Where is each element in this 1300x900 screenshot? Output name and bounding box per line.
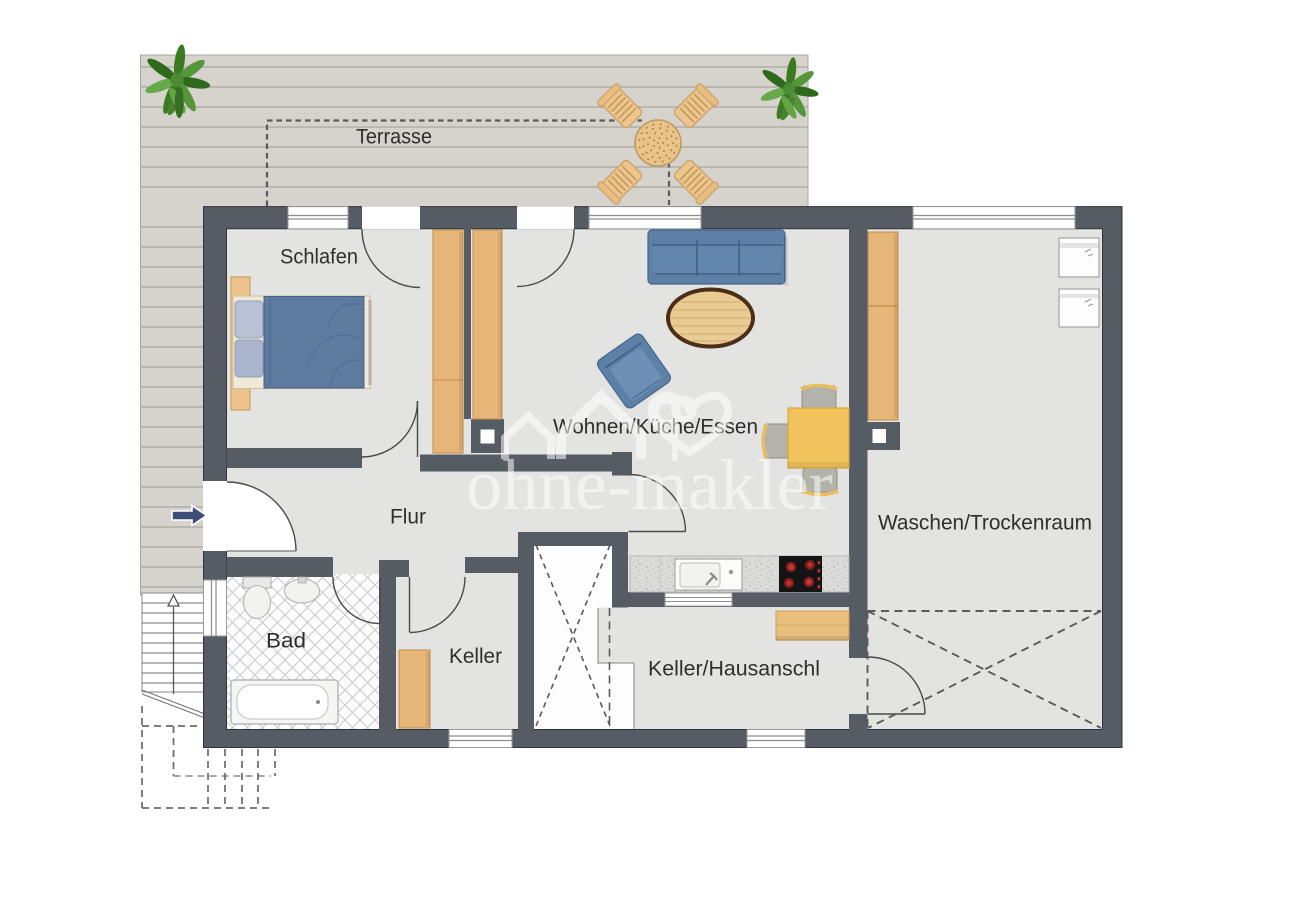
svg-text:Bad: Bad	[266, 630, 306, 653]
svg-text:Flur: Flur	[390, 506, 426, 529]
svg-text:ohne-makler: ohne-makler	[466, 445, 833, 525]
svg-text:Schlafen: Schlafen	[280, 246, 358, 269]
svg-text:Terrasse: Terrasse	[356, 126, 432, 149]
svg-text:Waschen/Trockenraum: Waschen/Trockenraum	[878, 512, 1092, 535]
svg-text:Keller: Keller	[449, 645, 502, 668]
svg-text:Keller/Hausanschl: Keller/Hausanschl	[648, 658, 820, 681]
